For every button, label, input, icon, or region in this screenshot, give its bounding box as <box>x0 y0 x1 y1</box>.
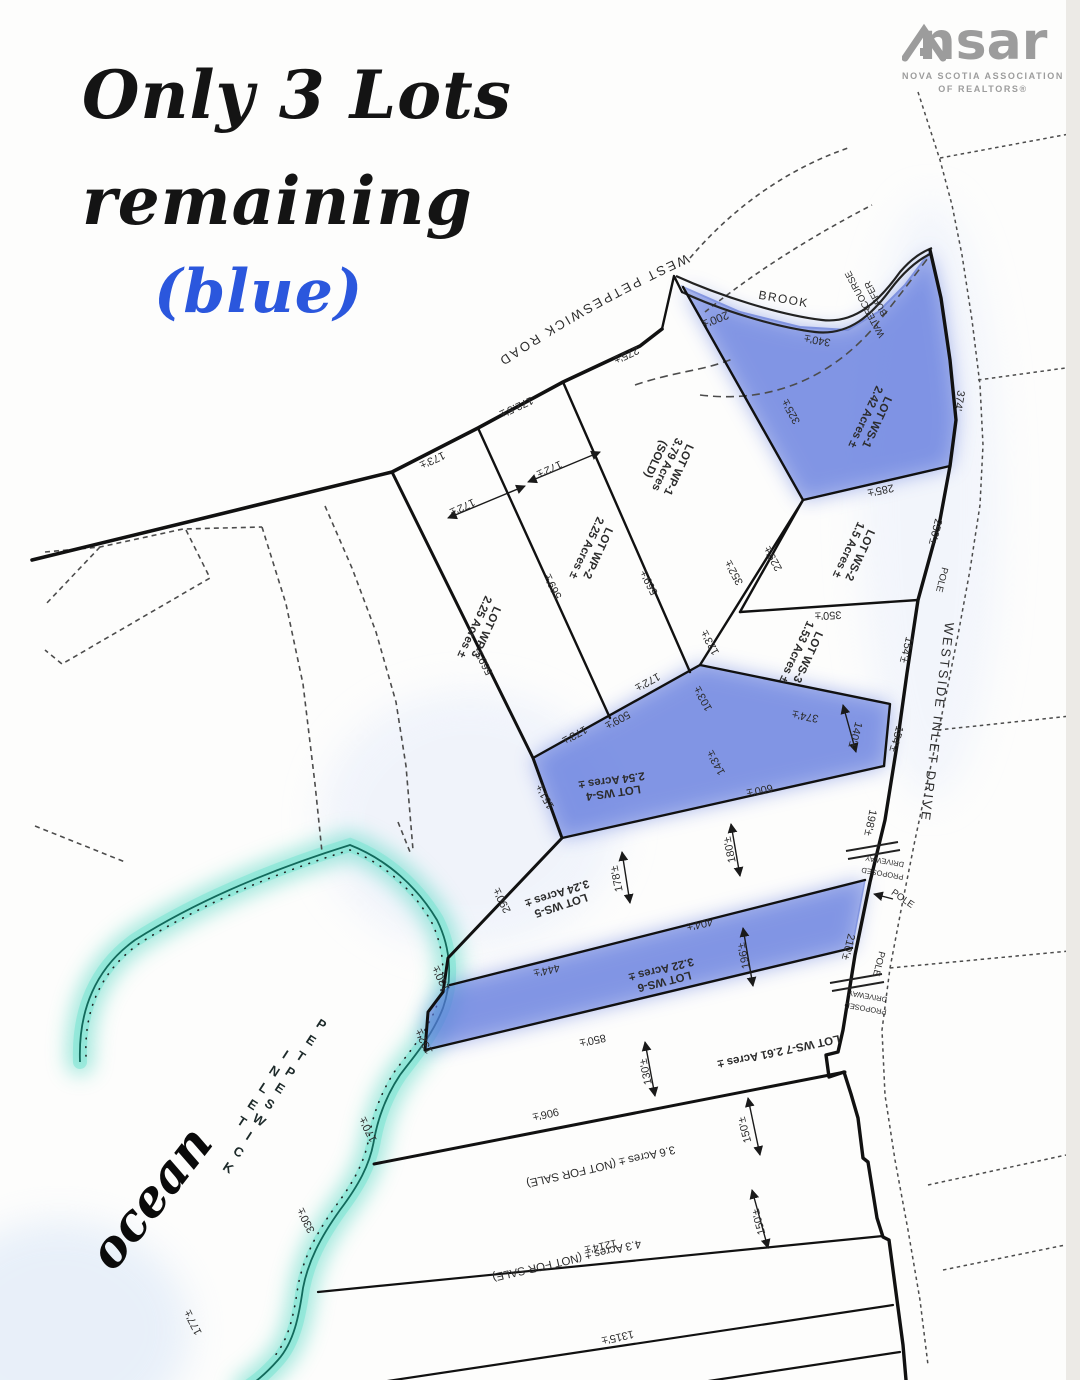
scan-edge-strip <box>1066 0 1080 1380</box>
west-petpeswick-road-edge <box>32 329 662 560</box>
flyer-page: WEST PETPESWICK ROAD WESTSIDE INLET DRIV… <box>0 0 1080 1380</box>
map-label-lot-ws3: LOT WS-31.53 Acres ± <box>776 619 827 690</box>
west-petpeswick-road-label: WEST PETPESWICK ROAD <box>495 251 691 369</box>
map-label-line: DRIVEWAY <box>848 988 888 1004</box>
lot-ws1-highlight <box>683 252 956 500</box>
map-label-proposed-driveway-2: PROPOSEDDRIVEWAY <box>843 988 889 1017</box>
map-label-dim-330: 330'± <box>295 1206 318 1235</box>
map-label-dim-172p5: 172.5'± <box>498 394 535 420</box>
map-label-dim-850: 850'± <box>578 1031 606 1048</box>
map-label-dim-150-a: 150'± <box>736 1115 754 1144</box>
logo-text-ar: ar <box>987 22 1048 64</box>
map-label-pole-2: POLE <box>889 887 916 911</box>
map-label-dim-906: 906'± <box>531 1105 560 1123</box>
map-label-proposed-driveway-1: PROPOSEDDRIVEWAY <box>860 853 906 882</box>
map-label-dim-123: 123'± <box>699 628 722 657</box>
map-label-dim-178: 178'± <box>608 864 625 892</box>
map-label-lot-wp2: LOT WP-22.25 Acres ± <box>566 515 617 586</box>
headline-line3-blue: (blue) <box>154 262 512 322</box>
map-label-dim-198: 198'± <box>861 808 878 836</box>
headline-line1: Only 3 Lots <box>82 62 512 128</box>
headline-line2: remaining <box>82 168 512 234</box>
map-label-dim-350: 350'± <box>815 608 842 621</box>
logo-caption-line1: NOVA SCOTIA ASSOCIATION <box>902 70 1064 84</box>
map-label-dim-569-c: 569'± <box>638 568 661 597</box>
map-label-line: DRIVEWAY <box>865 853 905 869</box>
map-label-dim-172-b: 172'± <box>535 458 564 480</box>
map-label-dim-352: 352'± <box>723 558 746 587</box>
map-label-not-for-sale-1: 3.6 Acres ± (NOT FOR SALE) <box>525 1143 676 1189</box>
logo-caption-line2: OF REALTORS® <box>902 83 1064 97</box>
headline: Only 3 Lots remaining (blue) <box>82 62 512 322</box>
map-label-dim-172-a: 172'± <box>448 496 477 518</box>
map-label-dim-180: 180'± <box>721 835 738 863</box>
map-label-not-for-sale-2: 4.3 Acres ± (NOT FOR SALE) <box>491 1237 642 1283</box>
map-label-dim-275: 275'± <box>612 344 641 366</box>
map-label-brook: BROOK <box>757 288 810 311</box>
nsar-logo: ns ar NOVA SCOTIA ASSOCIATION OF REALTOR… <box>902 22 1064 97</box>
map-label-lot-ws7: LOT WS-7 2.61 Acres ± <box>716 1032 841 1070</box>
map-label-dim-150-b: 150'± <box>750 1207 768 1236</box>
map-label-lot-wp1: LOT WP-13.79 Acres(SOLD) <box>638 431 696 498</box>
map-label-dim-130-b: 130'± <box>637 1057 654 1085</box>
map-label-lot-wp3: LOT WP-32.25 Acres ± <box>454 594 505 665</box>
map-label-pole-3: POLE <box>870 950 887 977</box>
map-label-dim-569-b: 569'± <box>542 572 565 601</box>
